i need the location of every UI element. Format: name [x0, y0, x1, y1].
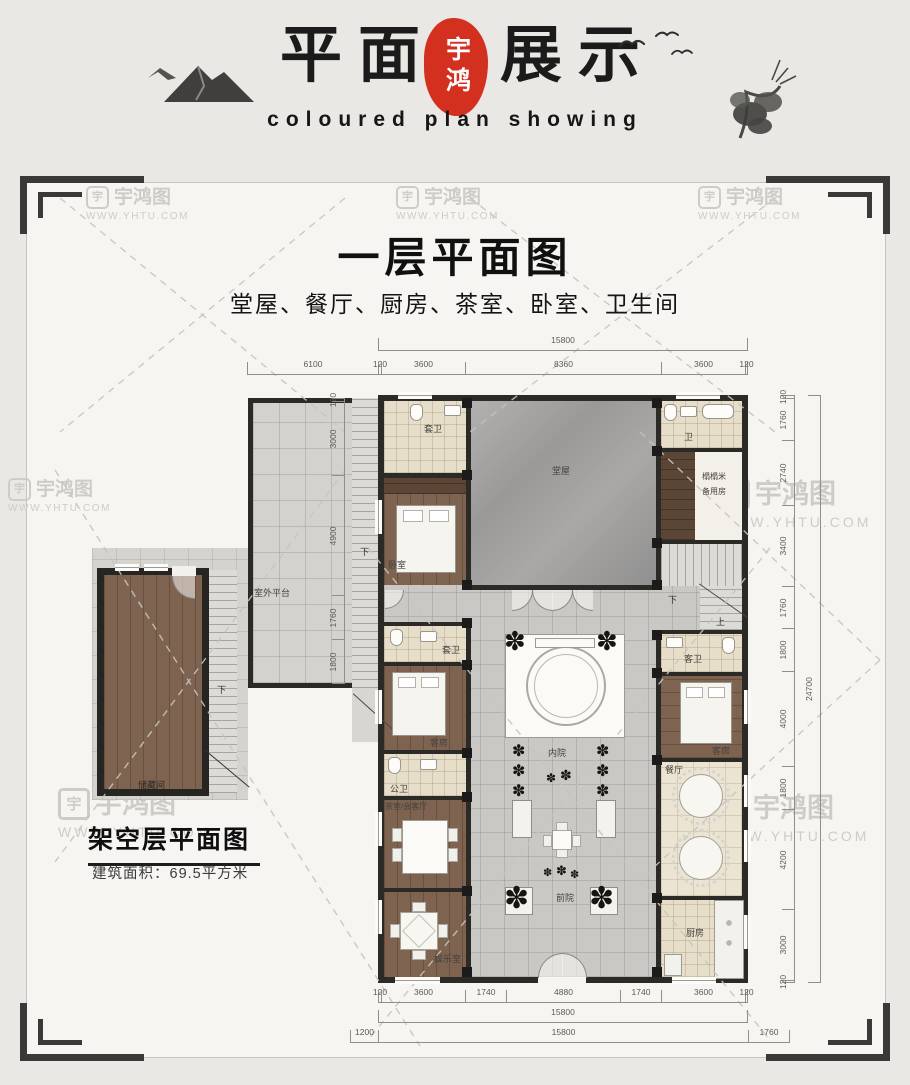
dim-label: 3000 [329, 429, 338, 448]
dim-right-overall: 24700 [808, 395, 821, 983]
dim-label: 8360 [554, 360, 573, 369]
sink-icon [444, 405, 461, 416]
room-label-inner-court: 内院 [548, 748, 566, 758]
dim-label: 15800 [552, 1028, 576, 1037]
room-label-storage: 储藏间 [138, 780, 165, 790]
fridge [664, 954, 682, 976]
toilet-icon [410, 404, 423, 421]
room-label-guest-left: 客房 [430, 738, 448, 748]
room-label-game: 娱乐室 [434, 954, 461, 964]
exterior-stairs [352, 398, 378, 688]
dim-label: 120 [739, 360, 753, 369]
page-subtitle: 堂屋、餐厅、厨房、茶室、卧室、卫生间 [0, 285, 910, 319]
birds-icon [616, 28, 696, 64]
toilet-icon [390, 629, 403, 646]
room-label-guest-bath: 客卫 [684, 654, 702, 664]
dim-label: 4900 [329, 526, 338, 545]
bed [680, 682, 732, 744]
small-plan-storage-room [97, 568, 209, 796]
dim-label: 3600 [414, 360, 433, 369]
brand-seal-text: 宇鸿 [444, 36, 469, 98]
small-plan-door-opening [172, 566, 196, 576]
room-main-hall [471, 401, 656, 585]
dim-bottom-chain: 120 3600 1740 4880 1740 3600 120 [378, 990, 748, 1003]
sink-icon [680, 406, 697, 417]
watermark-logo-icon: 宇 [8, 478, 31, 501]
wardrobe [384, 478, 466, 494]
dim-label: 3600 [414, 988, 433, 997]
poster-page: 平面 宇鸿 展示 coloured plan showing [0, 0, 910, 1085]
dim-label: 4200 [779, 850, 788, 869]
toilet-icon [722, 637, 735, 654]
room-label-bedroom-1: 卧室 [388, 560, 406, 570]
dim-label: 1760 [779, 410, 788, 429]
shrub-icon: ✽ [570, 870, 579, 881]
plant-icon: ✽ [512, 764, 525, 780]
dim-bottom-overall: 15800 [378, 1010, 748, 1023]
stair-down-label: 下 [360, 548, 369, 557]
toilet-icon [664, 404, 677, 421]
room-label-public-bath: 公卫 [390, 784, 408, 794]
dim-label: 1760 [329, 608, 338, 627]
plant-icon: ✽ [596, 764, 609, 780]
dim-label: 1740 [632, 988, 651, 997]
room-label-main-hall: 堂屋 [552, 466, 570, 476]
watermark-logo-icon: 宇 [396, 186, 419, 209]
tree-icon: ✽ [589, 884, 614, 914]
room-label-bath-small: 卫 [684, 432, 693, 442]
plant-icon: ✽ [596, 744, 609, 760]
room-label-tea: 茶室/会客厅 [385, 802, 427, 811]
stair-down-label: 下 [668, 596, 677, 605]
watermark-logo-icon: 宇 [86, 186, 109, 209]
dim-label: 3400 [779, 537, 788, 556]
room-label-tatami-2: 备用房 [702, 487, 726, 496]
dim-label: 1800 [329, 652, 338, 671]
room-label-ensuite-bath-2: 套卫 [442, 645, 460, 655]
room-label-tatami-1: 榻榻米 [702, 472, 726, 481]
tea-table [402, 820, 448, 874]
dim-label: 15800 [551, 336, 575, 345]
bathtub-icon [702, 404, 734, 419]
room-label-terrace: 室外平台 [254, 588, 290, 598]
plant-icon: ✽ [504, 628, 526, 654]
sink-icon [666, 637, 683, 648]
dim-label: 3000 [779, 936, 788, 955]
shrub-icon: ✽ [556, 864, 567, 877]
small-plan-title: 架空层平面图 [88, 820, 260, 866]
bed [392, 672, 446, 736]
dim-right-chain: 120 1760 2740 3400 1760 1800 4000 1800 4… [782, 395, 795, 983]
bench [535, 638, 595, 648]
kitchen-counter [714, 900, 744, 979]
room-label-guest-right: 客房 [712, 746, 730, 756]
dim-label: 1760 [760, 1028, 779, 1037]
toilet-icon [388, 757, 401, 774]
plant-icon: ✽ [512, 784, 525, 800]
header-title-left: 平面 [280, 24, 436, 86]
mahjong-table [400, 912, 438, 950]
stair-down-label: 下 [217, 686, 226, 695]
plant-icon: ✽ [560, 768, 572, 782]
dim-label: 24700 [805, 677, 814, 701]
courtyard-motif [526, 646, 606, 726]
dim-label: 6100 [304, 360, 323, 369]
dim-label: 3600 [694, 988, 713, 997]
dim-label: 120 [779, 974, 788, 988]
small-plan-area: 建筑面积：69.5平方米 [92, 862, 248, 883]
planter-box [512, 800, 532, 838]
sink-icon [420, 631, 437, 642]
planter-box [596, 800, 616, 838]
tree-icon: ✽ [504, 884, 529, 914]
ink-plant-icon [710, 42, 806, 148]
dining-table [679, 774, 723, 818]
watermark: 宇宇鸿图 WWW.YHTU.COM [86, 186, 189, 222]
dim-top-overall: 15800 [378, 338, 748, 351]
brand-seal: 宇鸿 [424, 18, 488, 116]
dining-table [679, 836, 723, 880]
dim-label: 4000 [779, 710, 788, 729]
dim-label: 2740 [779, 464, 788, 483]
plant-icon: ✽ [596, 784, 609, 800]
shrub-icon: ✽ [543, 868, 552, 879]
room-label-ensuite-bath-1: 套卫 [424, 424, 442, 434]
dim-label: 1760 [779, 598, 788, 617]
room-label-kitchen: 厨房 [686, 928, 704, 938]
plant-icon: ✽ [512, 744, 525, 760]
watermark-logo-icon: 宇 [698, 186, 721, 209]
garden-table [552, 830, 572, 850]
dim-label: 4880 [554, 988, 573, 997]
watermark-logo-icon: 宇 [58, 788, 90, 820]
watermark: 宇宇鸿图 WWW.YHTU.COM [698, 186, 801, 222]
room-label-dining: 餐厅 [665, 765, 683, 775]
plant-icon: ✽ [546, 772, 556, 784]
dim-label: 1200 [355, 1028, 374, 1037]
dim-label: 3600 [694, 360, 713, 369]
dim-label: 15800 [551, 1008, 575, 1017]
dim-label: 1740 [477, 988, 496, 997]
plant-icon: ✽ [596, 628, 618, 654]
wardrobe [661, 452, 695, 540]
dim-bottom-row: 1200 15800 1760 [350, 1030, 790, 1043]
watermark: 宇宇鸿图 WWW.YHTU.COM [396, 186, 499, 222]
dim-label: 120 [739, 988, 753, 997]
stair-up-label: 上 [716, 618, 725, 627]
small-plan-stairs [209, 570, 237, 793]
watermark: 宇宇鸿图 WWW.YHTU.COM [8, 478, 111, 514]
dim-label: 1800 [779, 779, 788, 798]
ink-mountains-icon [146, 52, 260, 108]
header-subtitle: coloured plan showing [0, 108, 910, 132]
room-label-front-court: 前院 [556, 893, 574, 903]
dim-top-chain: 6100 120 3600 8360 3600 120 [247, 362, 748, 375]
sink-icon [420, 759, 437, 770]
interior-stairs [661, 544, 742, 586]
dim-label: 1800 [779, 641, 788, 660]
page-title: 一层平面图 [0, 224, 910, 285]
dim-left-chain: 120 3000 4900 1760 1800 [332, 398, 345, 684]
